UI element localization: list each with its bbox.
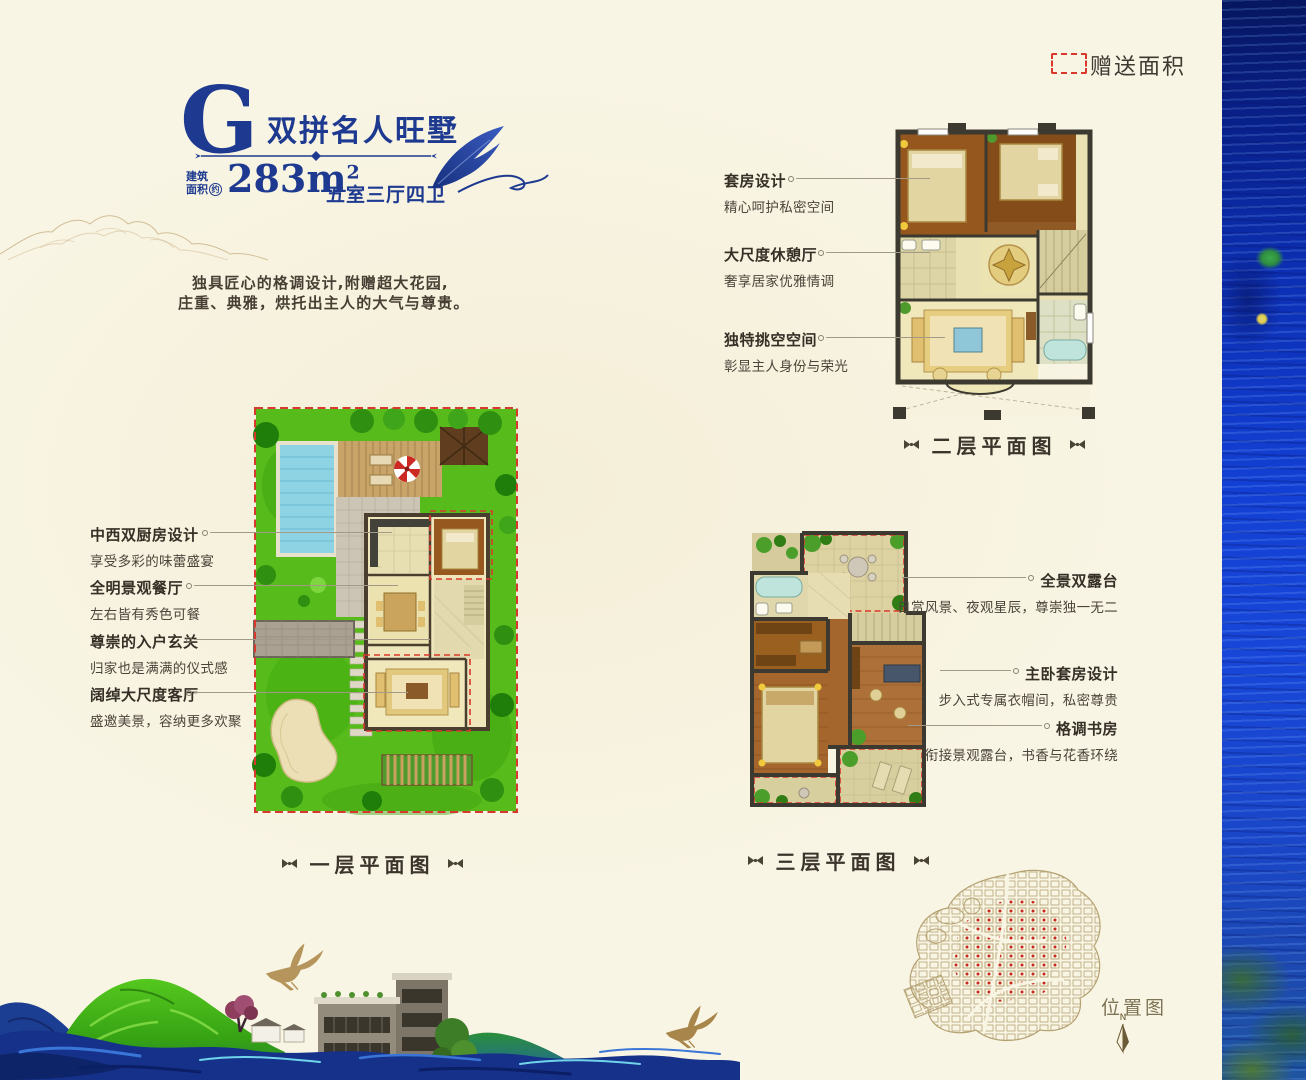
- annotation-kitchen: 中西双厨房设计 享受多彩的味蕾盛宴: [90, 524, 214, 570]
- leader-line: [826, 337, 945, 338]
- leader-dot: [186, 637, 192, 643]
- leader-dot: [186, 690, 192, 696]
- svg-text:N: N: [1120, 1013, 1127, 1023]
- leader-line: [796, 178, 930, 179]
- feather-icon: [424, 124, 552, 204]
- area-label: 建筑 面积约: [186, 170, 222, 196]
- leader-dot: [1013, 668, 1019, 674]
- legend-swatch: [1051, 53, 1087, 74]
- caption-ornament-icon: [281, 858, 298, 869]
- scenery-art: [0, 930, 740, 1080]
- village-houses: [250, 1018, 306, 1042]
- floor-plan-3f: [738, 515, 938, 820]
- leader-dot: [186, 583, 192, 589]
- floor1-caption: 一层平面图: [238, 849, 506, 878]
- leader-line: [210, 532, 392, 533]
- leader-dot: [1044, 723, 1050, 729]
- floor-plan-1f: [252, 405, 520, 815]
- compass-icon: N: [1110, 1010, 1136, 1054]
- leader-dot: [788, 176, 794, 182]
- stairs-3f: [850, 613, 924, 643]
- pergola: [382, 755, 472, 785]
- description-line1: 独具匠心的格调设计,附赠超大花园,: [178, 274, 478, 294]
- annotation-entry: 尊崇的入户玄关 归家也是满满的仪式感: [90, 631, 228, 677]
- leader-line: [908, 725, 1042, 726]
- caption-ornament-icon: [447, 858, 464, 869]
- legend-label: 赠送面积: [1090, 49, 1186, 81]
- leader-line: [826, 252, 930, 253]
- leader-line: [194, 639, 430, 640]
- brochure-page: G 双拼名人旺墅 建筑 面积约 283m2 五室三厅四卫 独具匠心的格调设计,附…: [0, 0, 1306, 1080]
- leader-line: [940, 670, 1011, 671]
- area-label-line2: 面积约: [186, 183, 222, 196]
- parasol: [394, 456, 420, 482]
- mountain-sketch-art: [0, 202, 272, 274]
- leader-dot: [818, 250, 824, 256]
- annotation-dining: 全明景观餐厅 左右皆有秀色可餐: [90, 577, 200, 623]
- oil-painting-strip: [1222, 0, 1306, 1080]
- caption-ornament-icon: [1069, 439, 1086, 450]
- description-line2: 庄重、典雅，烘托出主人的大气与尊贵。: [178, 294, 470, 312]
- leader-dot: [818, 335, 824, 341]
- caption-ornament-icon: [747, 855, 764, 866]
- floor1-caption-text: 一层平面图: [310, 849, 435, 878]
- leader-line: [902, 577, 1026, 578]
- caption-ornament-icon: [903, 439, 920, 450]
- wood-deck: [338, 441, 442, 497]
- leader-dot: [1028, 575, 1034, 581]
- floor3-caption-text: 三层平面图: [776, 846, 901, 875]
- approx-mark: 约: [209, 183, 222, 196]
- annotation-suite-design: 套房设计 精心呵护私密空间: [724, 170, 834, 216]
- house-1f: [364, 511, 492, 731]
- annotation-void-space: 独特挑空空间 彰显主人身份与荣光: [724, 329, 848, 375]
- site-map: [896, 862, 1106, 1052]
- leader-line: [194, 585, 398, 586]
- description-paragraph: 独具匠心的格调设计,附赠超大花园, 庄重、典雅，烘托出主人的大气与尊贵。: [178, 274, 478, 313]
- annotation-living-room: 阔绰大尺度客厅 盛邀美景，容纳更多欢聚: [90, 684, 242, 730]
- leader-dot: [202, 530, 208, 536]
- area-label-line1: 建筑: [186, 170, 222, 183]
- crane-icon: [263, 941, 329, 993]
- crane-icon: [663, 1003, 723, 1051]
- floor2-caption: 二层平面图: [888, 430, 1100, 459]
- floor2-caption-text: 二层平面图: [932, 430, 1057, 459]
- floor-plan-2f: [888, 118, 1100, 420]
- leader-line: [194, 692, 408, 693]
